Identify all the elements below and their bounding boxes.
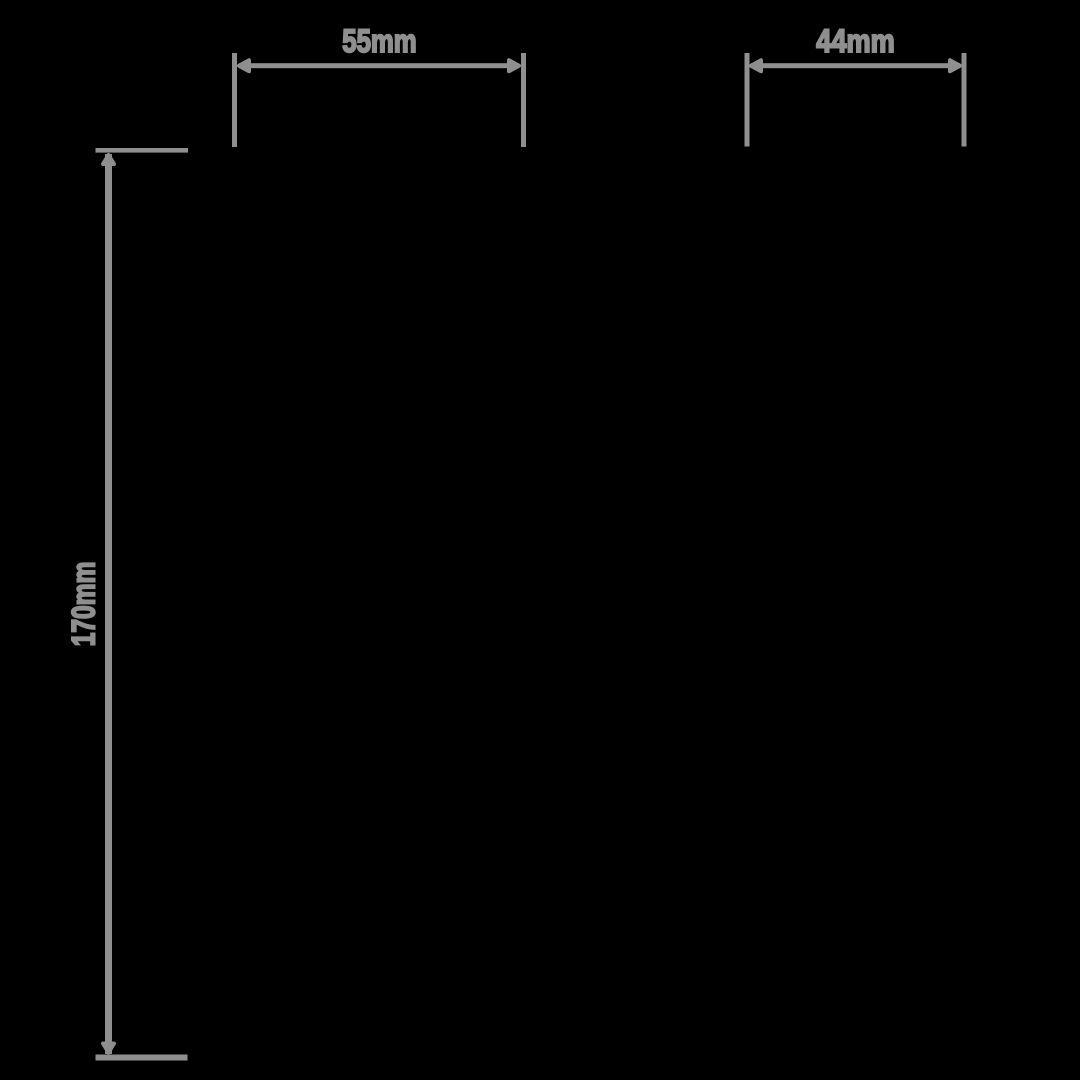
svg-text:44mm: 44mm bbox=[816, 23, 894, 59]
svg-text:55mm: 55mm bbox=[342, 23, 416, 59]
svg-text:170mm: 170mm bbox=[66, 562, 102, 647]
